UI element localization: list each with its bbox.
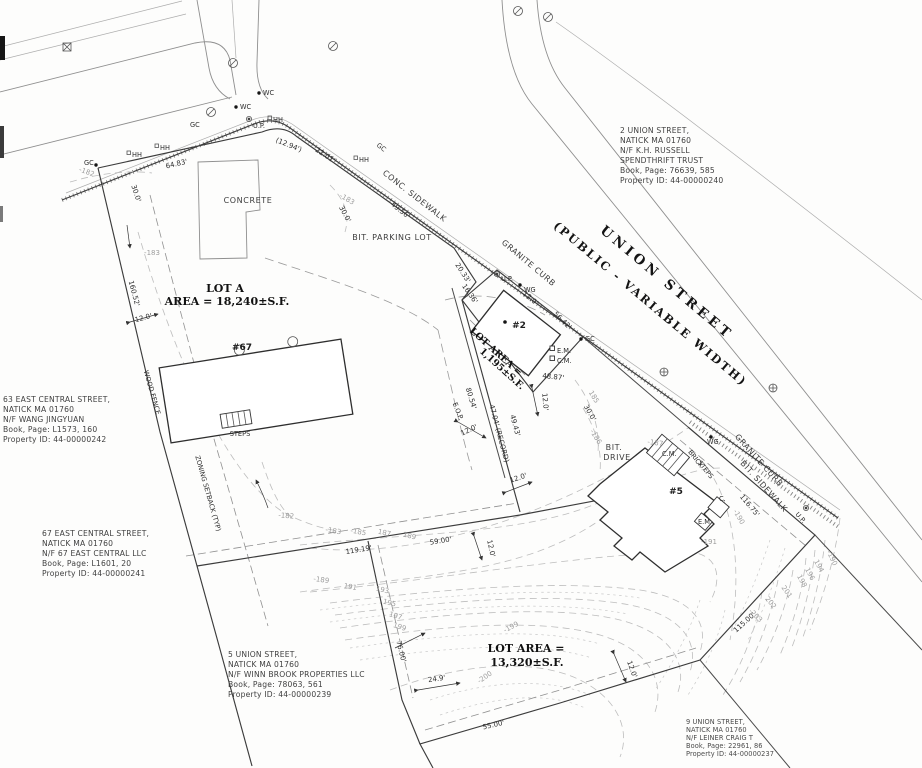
drain-icon [769,384,777,392]
dimension-label: 30.0' [582,403,598,422]
lot-labels: LOT A AREA = 18,240±S.F. #67 LOT AREA = … [164,282,683,669]
slope-hatching [320,540,785,715]
scan-artifact [0,206,3,222]
abutter-line: 9 UNION STREET, [686,718,745,726]
contour-label: 193 [375,585,390,596]
dim-arrow [418,683,460,690]
contour-label: 189 [402,531,417,542]
dimension-label: 64.83' [165,158,188,171]
manhole-icon [229,59,238,68]
curb-point [579,337,582,340]
scan-artifact [0,126,4,158]
abutter-line: N/F WANG JINGYUAN [3,415,84,424]
abutter-line: Property ID: 44-00000241 [42,569,145,578]
eop-line [438,330,472,470]
contour-label: -183 [144,249,160,257]
utility-pole-icon [803,505,808,510]
contour-label: 202 [763,595,778,610]
handhole-icon [127,151,131,155]
road-edge [537,0,922,540]
dimension-label: 49.56' [389,201,411,221]
water-gate-point [257,91,260,94]
eop-label: E.O.P. [451,401,465,421]
contour-label: -185 [350,527,367,538]
abutter-line: SPENDTHRIFT TRUST [620,156,703,165]
abutter-line: 67 EAST CENTRAL STREET, [42,529,149,538]
manhole-icon [329,42,338,51]
hatch-path [430,684,590,700]
dimension-label: 56.42' [552,310,573,331]
utility-pole-label: U.P. [501,275,513,283]
road-edge [257,0,268,99]
bit-drive-label: DRIVE [603,453,631,462]
contour-label: 195 [382,598,397,609]
hatch-path [748,548,785,640]
dimension-label: 49.43' [508,414,521,437]
monument-label: C.M. [662,450,677,458]
street-designation-label: (PUBLIC - VARIABLE WIDTH) [551,219,751,390]
lot-5-area-label: LOT AREA = [488,642,565,655]
abutter-line: 5 UNION STREET, [228,650,297,659]
abutter-line: Book, Page: 78063, 561 [228,680,323,689]
contour-path [300,495,615,545]
water-gate-label: WG [524,286,536,294]
dimension-label: 80.54' [464,387,478,410]
dimension-label: 30.0' [129,184,142,203]
water-gate-point [234,105,237,108]
dimension-label: 12.0' [509,472,528,485]
abutter-line: N/F 67 EAST CENTRAL LLC [42,549,147,558]
water-gate-label: WC [240,103,252,111]
dim-arrow [474,536,482,560]
dimension-label: 59.00' [429,535,452,546]
contour-label: 201 [780,584,794,600]
abutter-line: N/F K.H. RUSSELL [620,146,690,155]
granite-curb-point-label: GC [585,335,595,343]
contour-path [723,592,762,695]
contour-label: -200 [476,670,494,686]
utility-pole-label: U.P. [253,122,265,130]
wood-fence-label: WOOD FENCE [142,369,162,415]
building-67-label: #67 [232,343,252,353]
dimension-label: 12.0' [485,539,496,558]
monument-icon [550,356,555,361]
building-5-label: #5 [669,487,683,497]
street-labels: UNION STREET (PUBLIC - VARIABLE WIDTH) [551,219,751,390]
scan-artifact [0,36,5,60]
contour-path [390,666,624,757]
abutter-line: Property ID: 44-00000242 [3,435,106,444]
handhole-icon [354,156,358,160]
manhole-icon [514,7,523,16]
lot-5-west-boundary [368,541,420,744]
utility-pole-label: U.P. [794,511,808,525]
sidewalk-back-line [583,337,688,427]
abutter-line: 63 EAST CENTRAL STREET, [3,395,110,404]
contour-label: -182 [78,166,96,179]
contour-path [792,550,815,647]
abutter-line: Property ID: 44-00000237 [686,750,774,758]
concrete-label: CONCRETE [224,196,273,205]
contour-label: -187 [647,438,664,448]
contour-label: -190 [825,549,839,567]
catch-basin-icon [63,43,71,51]
flow-arrow [127,225,130,248]
handhole-label: HH [132,151,142,159]
road-edge [0,1,182,47]
brick-steps-label: STEPS [696,459,715,480]
abutter-line: NATICK MA 01760 [228,660,299,669]
dimension-label: 160.52' [127,280,142,308]
manhole-icon [544,13,553,22]
handhole-label: HH [359,156,369,164]
site-plan-drawing: UNION STREET (PUBLIC - VARIABLE WIDTH) L… [0,0,922,768]
monument-label: E.M. [557,347,571,355]
road-edge [0,42,236,95]
dimension-label: 12.0' [460,423,479,438]
water-gate-label: WC [263,89,275,97]
dim-arrow [532,388,538,416]
dimension-label: 30.0' [337,204,352,223]
dimension-label: 22.01' [314,146,337,165]
zoning-setback-label: ZONING SETBACK (TYP) [193,455,222,532]
contour-lines [70,172,840,757]
abutter-line: N/F LEINER CRAIG T [686,734,754,742]
abutter-line: Property ID: 44-00000239 [228,690,331,699]
dimension-label: (12.94') [275,136,304,154]
abutter-line: Book, Page: 76639, 585 [620,166,715,175]
dimension-label: 119.19' [345,544,372,556]
contour-label: 199 [392,621,407,633]
building-67 [158,329,353,443]
abutter-line: NATICK MA 01760 [686,726,747,734]
abutter-block-67-east-central: 67 EAST CENTRAL STREET, NATICK MA 01760 … [42,529,149,578]
abutter-line: Property ID: 44-00000240 [620,176,723,185]
contour-label: -186 [588,428,603,446]
abutter-line: 2 UNION STREET, [620,126,689,135]
road-edge [232,0,236,58]
contour-label: -183 [325,526,342,537]
abutter-block-9-union: 9 UNION STREET, NATICK MA 01760 N/F LEIN… [686,718,774,758]
property-boundaries [98,129,922,768]
abutter-block-63-east-central: 63 EAST CENTRAL STREET, NATICK MA 01760 … [3,395,110,444]
bit-parking-lot-label: BIT. PARKING LOT [352,233,432,242]
bit-drive-label: BIT. [606,443,623,452]
concrete-pad [198,160,260,259]
monument-label: C. [719,495,726,503]
handhole-label: HH [273,116,283,124]
contour-label: 191 [343,582,358,592]
dimension-label: 12.0' [540,393,550,411]
dimension-label: 12.0' [134,312,153,324]
abutter-line: Book, Page: L1601, 20 [42,559,131,568]
contour-label: 197 [388,610,403,621]
granite-curb-point-label: GC [190,121,200,129]
lot-a-title: LOT A [206,282,244,295]
water-gate-point [518,283,521,286]
manhole-icon [207,108,216,117]
building-point [503,320,507,324]
contour-label: -190 [731,508,746,526]
hatch-path [655,600,700,690]
site-plan-page: UNION STREET (PUBLIC - VARIABLE WIDTH) L… [0,0,922,768]
contour-label: -189 [313,575,330,585]
lot-5-area-value: 13,320±S.F. [490,656,563,669]
monument-label: C.M. [557,357,572,365]
monument-icon [550,346,555,351]
dimension-label: 55.00' [482,719,505,732]
contour-path [700,460,736,640]
curb-back-line [66,117,840,510]
building-2-label: #2 [512,321,526,331]
dimension-label: 48.87' [542,372,565,382]
curb-point [94,163,97,166]
abutter-line: N/F WINN BROOK PROPERTIES LLC [228,670,365,679]
dimension-label: 24.9' [427,674,446,684]
handhole-icon [155,144,159,148]
road-corner-curve [556,22,922,300]
dimension-label: 76.00' [394,640,407,663]
abutter-block-5-union: 5 UNION STREET, NATICK MA 01760 N/F WINN… [228,650,365,699]
abutter-line: NATICK MA 01760 [42,539,113,548]
drain-icon [660,368,668,376]
abutter-line: NATICK MA 01760 [3,405,74,414]
contour-label: -199 [502,620,520,635]
granite-curb-point-label: GC [84,159,94,167]
dimension-label: 20.33' [453,262,472,285]
abutter-line: NATICK MA 01760 [620,136,691,145]
contour-path [803,540,825,637]
abutter-line: Book, Page: L1573, 160 [3,425,97,434]
water-gate-label: WG [707,438,719,446]
monument-label: E.M [698,518,710,526]
abutter-block-2-union: 2 UNION STREET, NATICK MA 01760 N/F K.H.… [620,126,723,185]
hatch-path [440,698,585,715]
abutter-line: Book, Page: 22961, 86 [686,742,763,750]
steps-label: STEPS [230,430,251,438]
contour-path [262,462,292,518]
building-67-outline [159,339,353,443]
contour-label: -183 [338,192,356,207]
eop-line [265,258,438,330]
contour-label: -182 [278,511,295,520]
road-edge [0,14,186,60]
handhole-label: HH [160,144,170,152]
granite-curb-point-label: GC [375,141,388,154]
dim-arrow [614,654,626,682]
lot-a-area: AREA = 18,240±S.F. [164,295,290,308]
contour-label: -191 [701,538,717,546]
